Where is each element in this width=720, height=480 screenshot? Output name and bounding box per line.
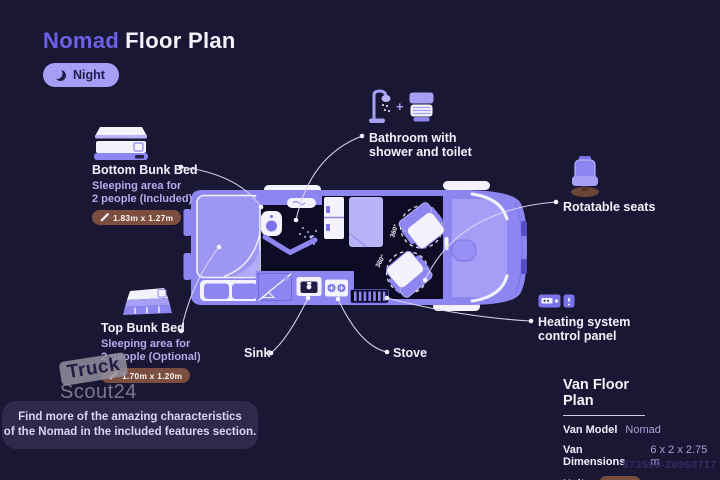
units-meter-chip[interactable]: Meter bbox=[599, 476, 642, 480]
van-sink bbox=[297, 277, 322, 296]
bottom-bunk-dimensions: 1.83m x 1.27m bbox=[113, 213, 173, 223]
moon-icon bbox=[55, 70, 66, 81]
van-cabinet bbox=[324, 197, 344, 239]
units-row: Units Meter bbox=[563, 476, 715, 480]
bunk-bed-bottom-icon bbox=[92, 126, 150, 160]
bottom-bunk-dimensions-badge: 1.83m x 1.27m bbox=[92, 210, 181, 225]
ruler-icon bbox=[100, 213, 109, 222]
bottom-bunk-sub2: 2 people (Included) bbox=[92, 193, 252, 206]
callout-heating: Heating system control panel bbox=[538, 294, 658, 343]
van-dinette bbox=[349, 197, 383, 247]
heater-control-icon bbox=[538, 294, 575, 308]
night-mode-label: Night bbox=[73, 68, 105, 82]
van-stove bbox=[325, 280, 348, 297]
stove-label: Stove bbox=[393, 346, 427, 360]
plus-sign: + bbox=[396, 99, 404, 114]
heating-label-1: Heating system bbox=[538, 315, 658, 329]
heating-label-2: control panel bbox=[538, 329, 658, 343]
night-mode-toggle[interactable]: Night bbox=[43, 63, 119, 87]
van-model-value: Nomad bbox=[625, 424, 660, 436]
swivel-seat-icon bbox=[568, 156, 602, 198]
van-info-title: Van Floor Plan bbox=[563, 377, 645, 416]
van-model-label: Van Model bbox=[563, 424, 617, 436]
listing-id: 573580-20960717 bbox=[623, 459, 717, 471]
shower-icon bbox=[369, 89, 391, 124]
rotatable-seats-label: Rotatable seats bbox=[563, 200, 673, 214]
callout-bottom-bunk: Bottom Bunk Bed Sleeping area for 2 peop… bbox=[92, 126, 252, 227]
toilet-icon bbox=[409, 92, 434, 122]
van-entry-step bbox=[351, 290, 389, 304]
bathroom-label-2: shower and toilet bbox=[369, 145, 489, 159]
note-line-1: Find more of the amazing characteristics bbox=[2, 410, 258, 425]
top-bunk-title: Top Bunk Bed bbox=[101, 321, 271, 335]
floor-plan-page: 360° 360° bbox=[0, 0, 720, 480]
page-title-model: Nomad bbox=[43, 28, 119, 53]
callout-rotatable-seats: Rotatable seats bbox=[563, 156, 673, 214]
callout-bathroom: + Bathroom with shower and toilet bbox=[369, 89, 489, 159]
page-title: NomadFloor Plan bbox=[43, 28, 236, 54]
bottom-bunk-sub1: Sleeping area for bbox=[92, 180, 252, 193]
top-bunk-dimensions: 1.70m x 1.20m bbox=[122, 371, 182, 381]
van-model-row: Van Model Nomad bbox=[563, 424, 715, 436]
bunk-bed-top-icon bbox=[123, 286, 173, 318]
bottom-bunk-title: Bottom Bunk Bed bbox=[92, 163, 252, 177]
sink-label: Sink bbox=[244, 346, 270, 360]
page-title-rest: Floor Plan bbox=[125, 28, 236, 53]
note-line-2: of the Nomad in the included features se… bbox=[2, 425, 258, 440]
note-box: Find more of the amazing characteristics… bbox=[2, 401, 258, 449]
bathroom-label-1: Bathroom with bbox=[369, 131, 489, 145]
